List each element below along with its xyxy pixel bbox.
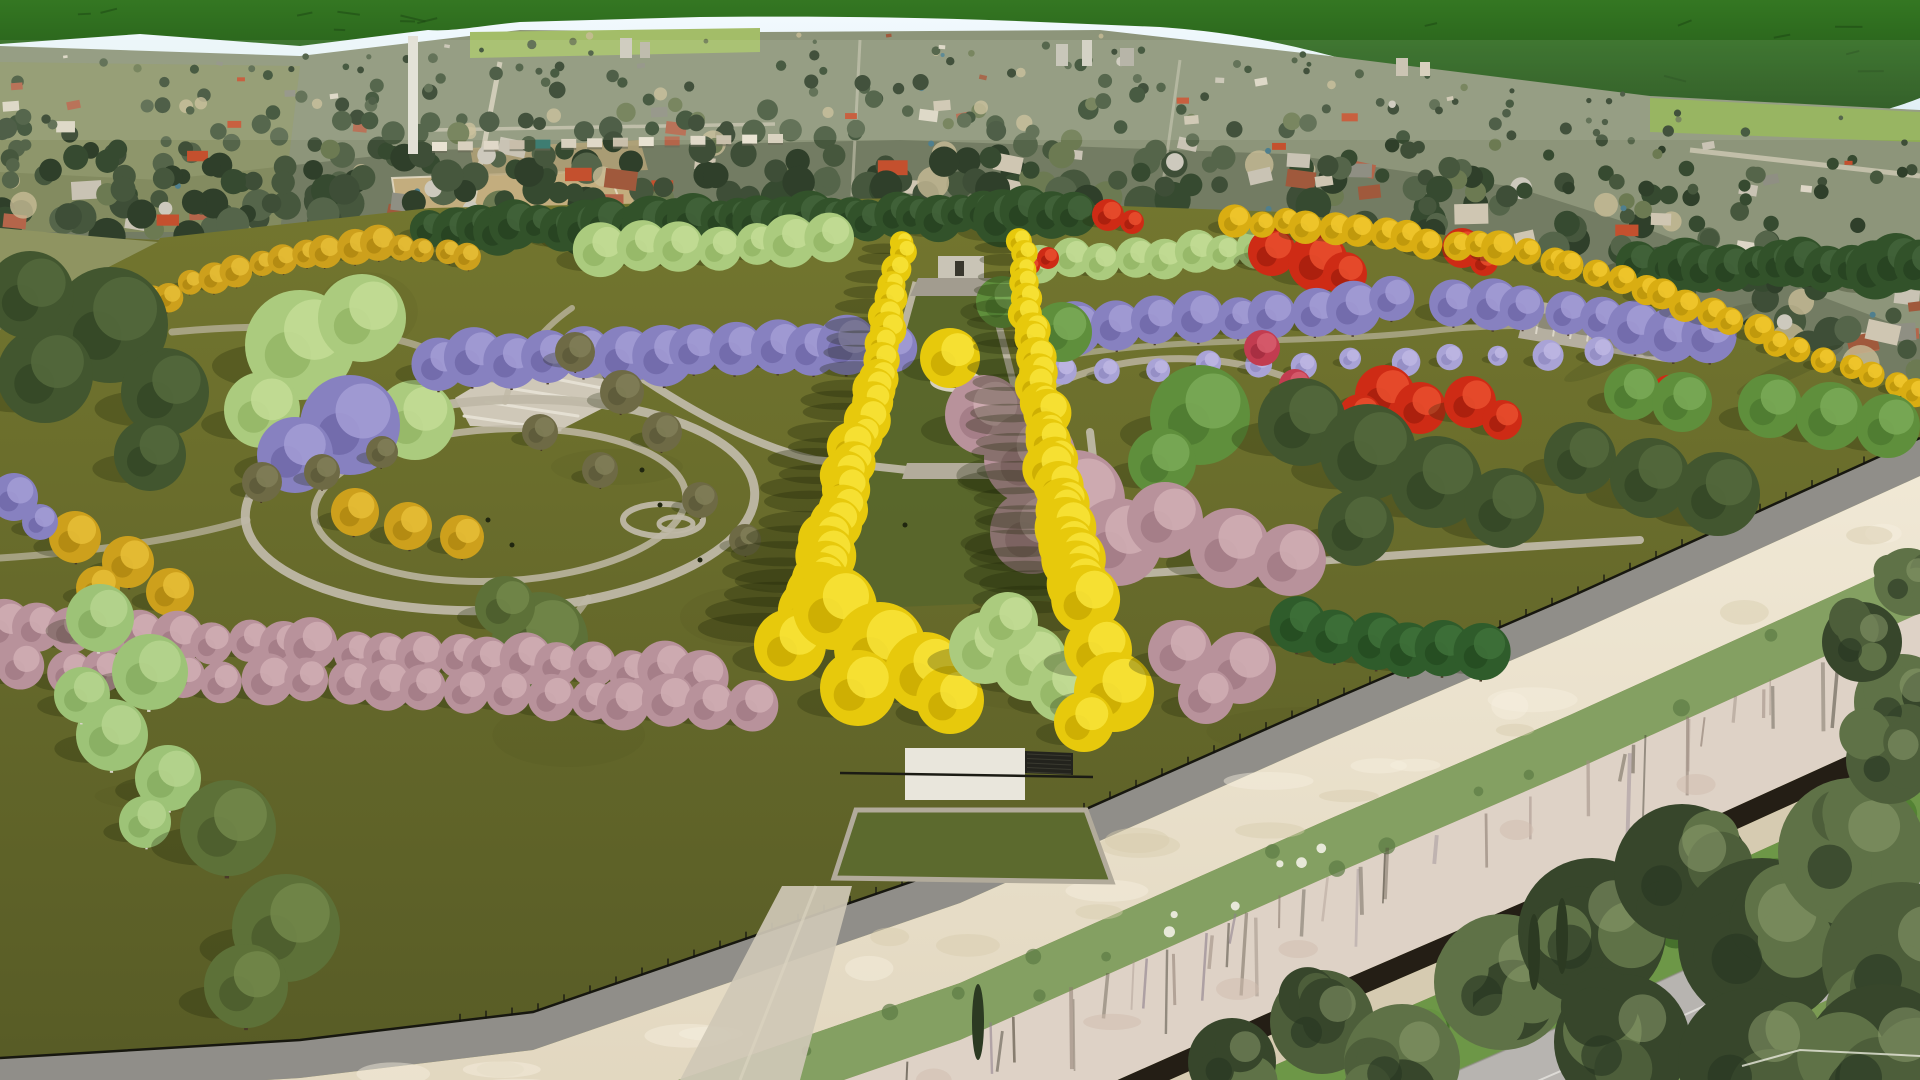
row-house bbox=[561, 139, 576, 148]
meadow-dot bbox=[510, 543, 515, 548]
meadow-dot bbox=[658, 503, 663, 508]
cypress-tree bbox=[1528, 914, 1540, 990]
entrance-forecourt bbox=[834, 810, 1112, 882]
cypress-tree bbox=[972, 984, 984, 1060]
cypress-tree bbox=[1556, 898, 1568, 974]
meadow-dot bbox=[486, 518, 491, 523]
row-house bbox=[510, 140, 525, 149]
scene-canvas bbox=[0, 0, 1920, 1080]
meadow-dot bbox=[698, 558, 703, 563]
meadow-dot bbox=[903, 523, 908, 528]
meadow-dot bbox=[640, 468, 645, 473]
atmospheric-haze bbox=[0, 40, 1920, 140]
row-house bbox=[432, 142, 447, 151]
earth-3d-park-visualization bbox=[0, 0, 1920, 1080]
row-house bbox=[458, 141, 473, 150]
row-house bbox=[484, 141, 499, 150]
monument-door bbox=[955, 261, 964, 276]
row-house bbox=[535, 140, 550, 149]
